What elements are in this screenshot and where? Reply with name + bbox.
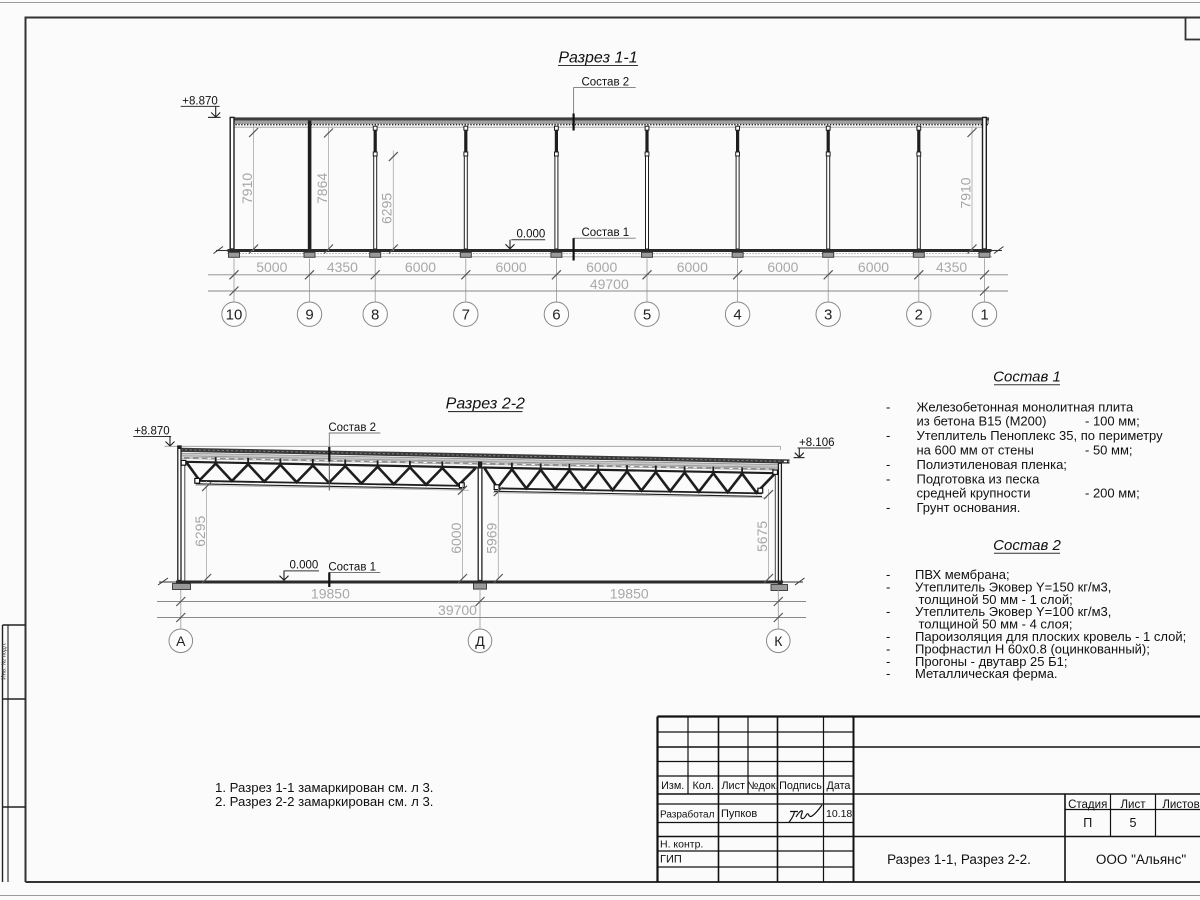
svg-text:А: А — [176, 633, 186, 649]
svg-text:7: 7 — [462, 307, 470, 324]
svg-text:2. Разрез 2-2 замаркирован см.: 2. Разрез 2-2 замаркирован см. л 3. — [215, 794, 433, 809]
svg-text:Н. контр.: Н. контр. — [660, 839, 703, 851]
svg-text:Пупков: Пупков — [721, 808, 757, 820]
svg-text:Лист: Лист — [721, 780, 745, 792]
svg-text:+8.870: +8.870 — [134, 425, 170, 437]
svg-text:Разрез 1-1, Разрез 2-2.: Разрез 1-1, Разрез 2-2. — [887, 852, 1031, 867]
svg-text:4: 4 — [733, 307, 741, 324]
svg-text:Состав 1: Состав 1 — [328, 561, 376, 573]
svg-text:-: - — [886, 666, 890, 681]
svg-text:7864: 7864 — [314, 173, 330, 204]
svg-text:6000: 6000 — [858, 259, 889, 275]
svg-text:3: 3 — [824, 307, 832, 324]
svg-text:Железобетонная монолитная пли: Железобетонная монолитная плита — [917, 399, 1134, 414]
svg-text:10.18: 10.18 — [826, 808, 852, 820]
svg-text:из бетона В15 (М200): из бетона В15 (М200) — [917, 414, 1047, 429]
svg-text:6: 6 — [552, 307, 560, 324]
svg-text:ГИП: ГИП — [660, 854, 682, 866]
svg-text:средней крупности: средней крупности — [917, 486, 1031, 501]
svg-text:- 100 мм;: - 100 мм; — [1085, 414, 1140, 429]
svg-text:6295: 6295 — [192, 516, 208, 547]
svg-text:4350: 4350 — [936, 259, 967, 275]
svg-text:5969: 5969 — [484, 522, 500, 553]
svg-text:5675: 5675 — [754, 521, 770, 552]
svg-text:6000: 6000 — [405, 259, 436, 275]
svg-text:6295: 6295 — [379, 193, 395, 224]
svg-text:+8.106: +8.106 — [799, 437, 835, 449]
svg-text:Металлическая ферма.: Металлическая ферма. — [915, 666, 1058, 681]
svg-text:Состав 1: Состав 1 — [993, 368, 1061, 385]
svg-text:6000: 6000 — [767, 259, 798, 275]
svg-text:Листов: Листов — [1162, 799, 1199, 811]
svg-text:6000: 6000 — [586, 259, 617, 275]
svg-text:-: - — [886, 604, 890, 619]
svg-text:- 200 мм;: - 200 мм; — [1085, 486, 1140, 501]
svg-text:6000: 6000 — [448, 522, 464, 553]
svg-text:Изм.: Изм. — [661, 780, 684, 792]
svg-text:Состав 2: Состав 2 — [993, 537, 1061, 554]
svg-text:7910: 7910 — [957, 177, 973, 208]
svg-text:Дата: Дата — [827, 780, 851, 792]
svg-text:Разрез 1-1: Разрез 1-1 — [558, 50, 637, 67]
svg-text:0.000: 0.000 — [290, 560, 319, 572]
svg-text:Стадия: Стадия — [1068, 799, 1107, 811]
svg-text:№док.: №док. — [747, 780, 779, 792]
svg-text:+8.870: +8.870 — [182, 96, 218, 108]
svg-text:Инв. № подл.: Инв. № подл. — [1, 642, 8, 680]
svg-text:-: - — [886, 399, 890, 414]
svg-text:Грунт основания.: Грунт основания. — [917, 500, 1021, 515]
svg-text:Состав 1: Состав 1 — [581, 227, 629, 239]
svg-text:19850: 19850 — [311, 585, 350, 601]
svg-text:-: - — [886, 471, 890, 486]
svg-text:5000: 5000 — [256, 259, 287, 275]
svg-text:Кол.: Кол. — [693, 780, 714, 792]
svg-text:9: 9 — [305, 307, 313, 324]
svg-text:-: - — [886, 579, 890, 594]
svg-text:5: 5 — [1130, 816, 1137, 830]
svg-text:К: К — [774, 633, 783, 649]
svg-text:ООО "Альянс": ООО "Альянс" — [1096, 852, 1186, 867]
svg-text:19850: 19850 — [610, 585, 649, 601]
svg-text:49700: 49700 — [590, 276, 629, 292]
svg-text:Утеплитель Пеноплекс 35, по пе: Утеплитель Пеноплекс 35, по периметру — [917, 428, 1164, 443]
svg-text:8: 8 — [371, 307, 379, 324]
svg-text:на 600 мм от стены: на 600 мм от стены — [917, 443, 1034, 458]
svg-text:-: - — [886, 428, 890, 443]
svg-text:-: - — [886, 500, 890, 515]
svg-text:Подпись: Подпись — [779, 780, 822, 792]
svg-text:6000: 6000 — [496, 259, 527, 275]
svg-text:Подготовка из песка: Подготовка из песка — [917, 471, 1041, 486]
svg-text:6000: 6000 — [677, 259, 708, 275]
svg-text:Разрез 2-2: Разрез 2-2 — [446, 396, 525, 413]
svg-text:7910: 7910 — [239, 173, 255, 204]
svg-text:Лист: Лист — [1121, 799, 1147, 811]
svg-text:П: П — [1083, 816, 1092, 830]
svg-text:- 50 мм;: - 50 мм; — [1085, 443, 1133, 458]
svg-text:1: 1 — [980, 307, 988, 324]
svg-text:5: 5 — [643, 307, 651, 324]
svg-text:10: 10 — [226, 307, 243, 324]
svg-text:Состав 2: Состав 2 — [581, 76, 629, 88]
svg-text:39700: 39700 — [438, 602, 477, 618]
svg-text:0.000: 0.000 — [517, 228, 546, 240]
svg-text:2: 2 — [915, 307, 923, 324]
svg-text:4350: 4350 — [327, 259, 358, 275]
svg-text:-: - — [886, 457, 890, 472]
svg-text:1. Разрез 1-1 замаркирован см.: 1. Разрез 1-1 замаркирован см. л 3. — [215, 780, 433, 795]
svg-text:Состав 2: Состав 2 — [328, 422, 376, 434]
svg-text:Д: Д — [475, 633, 485, 649]
svg-text:Полиэтиленовая пленка;: Полиэтиленовая пленка; — [917, 457, 1067, 472]
svg-text:Разработал: Разработал — [660, 809, 715, 821]
